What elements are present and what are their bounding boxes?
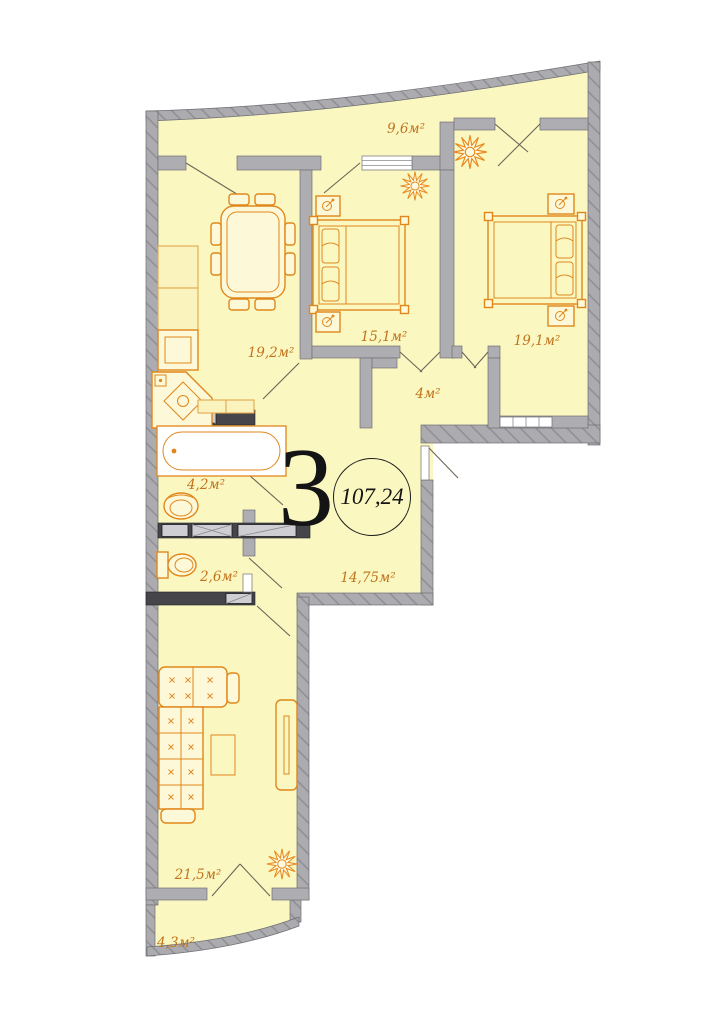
kitchen-counter — [198, 400, 226, 413]
total-area-badge: 107,24 — [333, 458, 411, 536]
area-label-kitchen: 19,2м² — [248, 345, 295, 361]
nightstand-icon — [548, 194, 574, 214]
chair-icon — [255, 299, 275, 310]
rooms-count: 3 — [278, 432, 334, 544]
kitchen-counter — [226, 400, 254, 413]
area-label-loggia: 9,6м² — [387, 121, 425, 137]
stove-icon — [158, 330, 198, 370]
sink-icon — [164, 493, 198, 519]
area-label-bedroom-middle: 15,1м² — [361, 329, 408, 345]
area-label-wc: 2,6м² — [200, 569, 238, 585]
chair-icon — [285, 223, 295, 245]
wc-door-leaf — [243, 574, 252, 592]
kitchen-counter — [158, 288, 198, 330]
bathtub-icon — [157, 426, 286, 476]
chair-icon — [229, 194, 249, 205]
floor-plan: 9,6м² 19,2м² 15,1м² 19,1м² 4м² 4,2м² 2,6… — [0, 0, 725, 1024]
chair-icon — [285, 253, 295, 275]
chair-icon — [211, 253, 221, 275]
toilet-icon — [157, 552, 196, 578]
area-label-bedroom-right: 19,1м² — [514, 333, 561, 349]
dining-table-icon — [211, 194, 295, 310]
area-label-balcony: 4,3м² — [157, 935, 195, 951]
nightstand-icon — [548, 306, 574, 326]
area-label-bathroom: 4,2м² — [187, 477, 225, 493]
nightstand-icon — [316, 196, 340, 216]
chair-icon — [255, 194, 275, 205]
chair-icon — [211, 223, 221, 245]
kitchen-counter — [158, 246, 198, 288]
nightstand-icon — [316, 312, 340, 332]
total-area-value: 107,24 — [340, 484, 403, 510]
area-label-living-room: 21,5м² — [175, 867, 222, 883]
area-label-corridor: 4м² — [415, 386, 440, 402]
entrance-door-leaf — [421, 446, 429, 480]
area-label-hallway: 14,75м² — [340, 570, 395, 586]
chair-icon — [229, 299, 249, 310]
